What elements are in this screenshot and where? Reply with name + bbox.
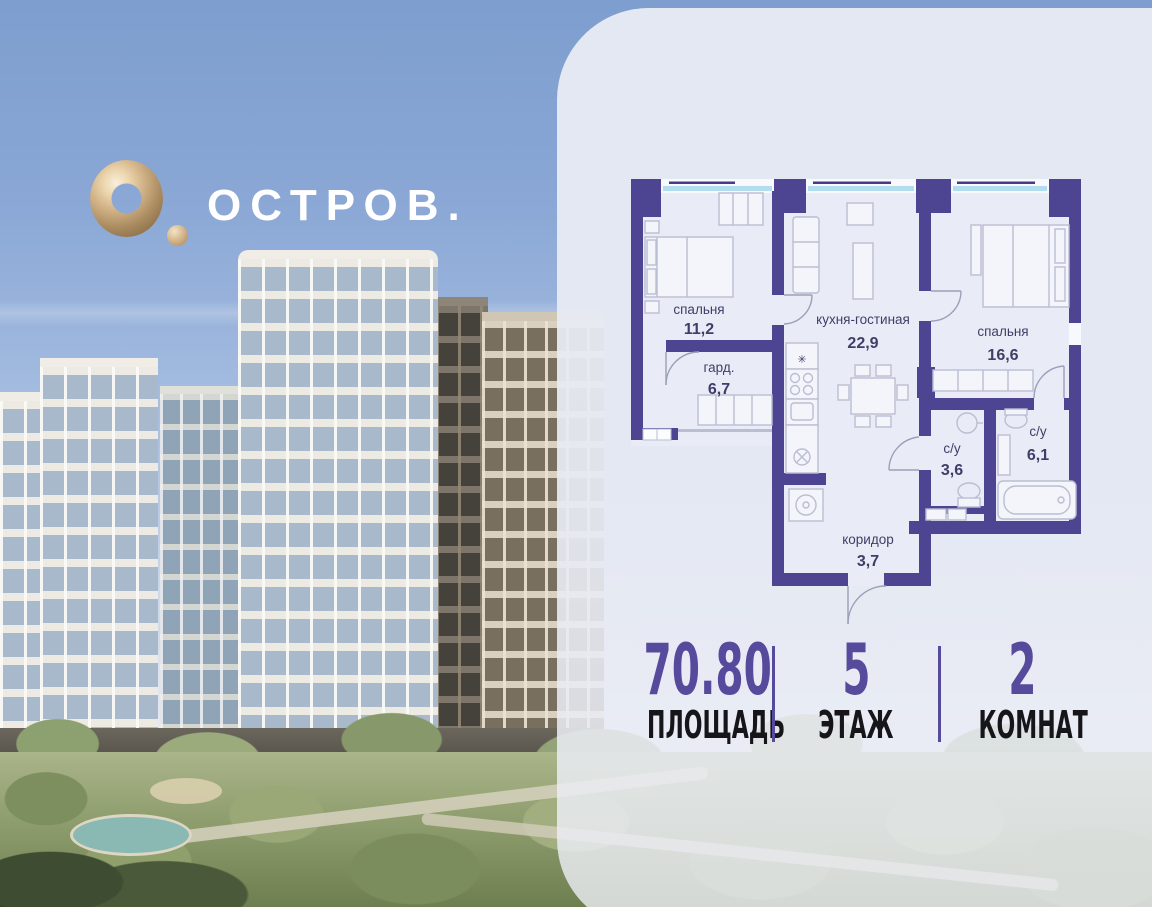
room-label-bathroom2: с/у xyxy=(1029,424,1047,439)
room-area-kitchen: 22,9 xyxy=(847,335,878,352)
logo-ring-icon xyxy=(90,160,163,237)
brand-logo: ОСТРОВ. xyxy=(90,158,530,270)
stat-floor-value: 5 xyxy=(842,638,870,702)
room-area-bedroom2: 16,6 xyxy=(987,347,1018,364)
stat-rooms-label: КОМНАТ xyxy=(979,706,1088,744)
floor-plan: спальня 11,2 кухня-гостиная 22,9 спальня… xyxy=(631,173,1081,628)
room-area-wardrobe: 6,7 xyxy=(708,381,730,398)
room-area-bathroom2: 6,1 xyxy=(1027,447,1049,464)
stat-rooms-value: 2 xyxy=(1008,638,1036,702)
logo-dot-icon xyxy=(167,225,188,246)
stat-rooms: 2 КОМНАТ xyxy=(939,638,1105,744)
windows xyxy=(661,179,1049,193)
room-area-corridor: 3,7 xyxy=(857,553,879,570)
park-playground xyxy=(150,778,222,804)
vent-symbol-icon: ✳ xyxy=(797,354,806,366)
room-area-bedroom1: 11,2 xyxy=(684,321,714,338)
room-label-corridor: коридор xyxy=(842,532,894,547)
brand-wordmark: ОСТРОВ. xyxy=(207,184,469,228)
stat-area-label: ПЛОЩАДЬ xyxy=(647,706,785,744)
stats-row: 70.80 ПЛОЩАДЬ 5 ЭТАЖ 2 КОМНАТ xyxy=(557,638,1152,768)
room-area-bathroom1: 3,6 xyxy=(941,462,963,479)
stat-floor-label: ЭТАЖ xyxy=(818,706,893,744)
stat-area-value: 70.80 xyxy=(643,638,771,702)
room-label-bedroom2: спальня xyxy=(977,324,1028,339)
room-label-bathroom1: с/у xyxy=(943,441,961,456)
poster: ОСТРОВ. xyxy=(0,0,1152,907)
park-foreground-trees xyxy=(0,845,250,907)
room-label-bedroom1: спальня xyxy=(673,302,724,317)
stat-area: 70.80 ПЛОЩАДЬ xyxy=(597,638,783,744)
info-panel: спальня 11,2 кухня-гостиная 22,9 спальня… xyxy=(557,8,1152,907)
stat-floor: 5 ЭТАЖ xyxy=(773,638,939,744)
room-label-wardrobe: гард. xyxy=(704,360,735,375)
room-label-kitchen: кухня-гостиная xyxy=(816,312,910,327)
